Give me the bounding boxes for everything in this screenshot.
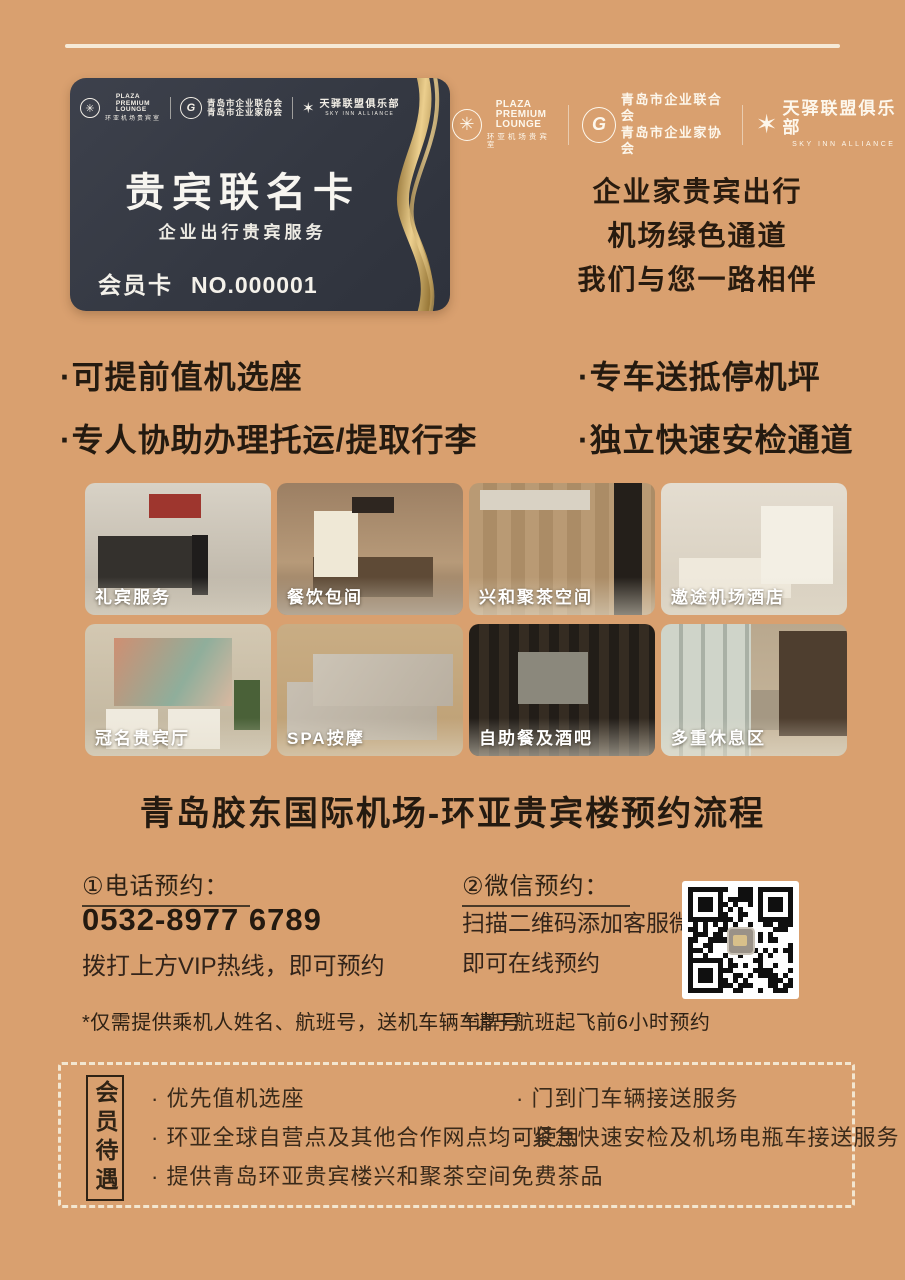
qr-center-logo-icon: [727, 927, 755, 955]
qingdao-line2: 青岛市企业家协会: [207, 108, 283, 117]
reservation-flow-title: 青岛胶东国际机场-环亚贵宾楼预约流程: [0, 786, 905, 835]
card-subtitle: 企业出行贵宾服务: [70, 218, 415, 243]
gallery-photo: 礼宾服务: [85, 483, 271, 615]
sky-inn-alliance-logo: ✶ 天驿联盟俱乐部 SKY INN ALLIANCE: [302, 99, 400, 118]
phone-booking-heading: ①电话预约：: [82, 866, 250, 907]
benefit-apron-car: ·专车送抵停机坪: [578, 352, 821, 398]
card-title: 贵宾联名卡: [70, 160, 415, 218]
flyer-page: ✳ PLAZA PREMIUM LOUNGE 环亚机场贵宾室 G 青岛市企业联合…: [0, 0, 905, 1280]
wechat-booking-line2: 即可在线预约: [462, 944, 600, 978]
gallery-photo: 兴和聚茶空间: [469, 483, 655, 615]
benefit-security: ·独立快速安检通道: [578, 415, 854, 461]
logo-divider: [292, 97, 293, 119]
gallery-photo: SPA按摩: [277, 624, 463, 756]
gallery-photo: 冠名贵宾厅: [85, 624, 271, 756]
gallery-photo: 餐饮包间: [277, 483, 463, 615]
plaza-premium-logo: ✳ PLAZA PREMIUM LOUNGE 环亚机场贵宾室: [452, 100, 555, 150]
slogan-line2: 机场绿色通道: [490, 214, 905, 258]
sky-inn-subtitle: SKY INN ALLIANCE: [325, 112, 394, 118]
phone-booking-note: 拨打上方VIP热线，即可预约: [82, 946, 385, 981]
plaza-word3: LOUNGE: [496, 120, 547, 130]
logo-divider: [742, 105, 743, 145]
qingdao-enterprise-logo: G 青岛市企业联合会 青岛市企业家协会: [582, 92, 729, 157]
photo-label: SPA按摩: [287, 724, 365, 749]
photo-label: 多重休息区: [671, 724, 766, 749]
vip-card: ✳ PLAZA PREMIUM LOUNGE 环亚机场贵宾室 G 青岛市企业联合…: [70, 78, 450, 311]
wechat-booking-line1: 扫描二维码添加客服微信: [462, 904, 715, 938]
qingdao-line1: 青岛市企业联合会: [621, 92, 729, 125]
plaza-flower-icon: ✳: [452, 109, 482, 141]
sky-inn-alliance-logo: ✶ 天驿联盟俱乐部 SKY INN ALLIANCE: [756, 100, 905, 148]
wechat-booking-heading: ②微信预约：: [462, 866, 630, 907]
membership-label: 会员待遇: [88, 1080, 122, 1196]
gallery-photo: 遨途机场酒店: [661, 483, 847, 615]
sky-inn-title: 天驿联盟俱乐部: [783, 100, 905, 137]
photo-label: 兴和聚茶空间: [479, 583, 593, 608]
gallery-photo: 自助餐及酒吧: [469, 624, 655, 756]
slogan-block: 企业家贵宾出行 机场绿色通道 我们与您一路相伴: [490, 170, 905, 302]
membership-item: · 门到门车辆接送服务: [516, 1079, 899, 1118]
gallery-photo: 多重休息区: [661, 624, 847, 756]
photo-label: 餐饮包间: [287, 583, 363, 608]
wechat-footnote: *请于航班起飞前6小时预约: [465, 1006, 710, 1035]
card-logo-row: ✳ PLAZA PREMIUM LOUNGE 环亚机场贵宾室 G 青岛市企业联合…: [70, 94, 410, 122]
qingdao-line2: 青岛市企业家协会: [621, 125, 729, 158]
benefit-checkin: ·可提前值机选座: [60, 352, 303, 398]
member-card-label: 会员卡: [98, 272, 173, 298]
vip-hotline-number: 0532-8977 6789: [82, 902, 322, 938]
member-card-no: NO.000001: [191, 272, 318, 298]
benefit-luggage: ·专人协助办理托运/提取行李: [60, 415, 478, 461]
qingdao-enterprise-logo: G 青岛市企业联合会 青岛市企业家协会: [180, 97, 283, 119]
logo-divider: [568, 105, 569, 145]
photo-label: 自助餐及酒吧: [479, 724, 593, 749]
phone-footnote: *仅需提供乘机人姓名、航班号，送机车辆车牌号: [82, 1006, 521, 1035]
slogan-line1: 企业家贵宾出行: [490, 170, 905, 214]
plaza-flower-icon: ✳: [80, 98, 100, 118]
membership-item: · 提供青岛环亚贵宾楼兴和聚茶空间免费茶品: [151, 1157, 603, 1196]
plaza-premium-logo: ✳ PLAZA PREMIUM LOUNGE 环亚机场贵宾室: [80, 94, 161, 122]
sky-inn-title: 天驿联盟俱乐部: [320, 99, 401, 110]
plaza-word3: LOUNGE: [116, 107, 150, 114]
membership-label-box: 会员待遇: [86, 1075, 124, 1201]
membership-list-right: · 门到门车辆接送服务 · 紧急快速安检及机场电瓶车接送服务: [516, 1079, 899, 1157]
header-logo-row: ✳ PLAZA PREMIUM LOUNGE 环亚机场贵宾室 G 青岛市企业联合…: [452, 92, 905, 157]
wechat-qr-code: [682, 881, 799, 999]
card-member-number: 会员卡NO.000001: [98, 266, 318, 300]
photo-gallery: 礼宾服务 餐饮包间 兴和聚茶空间 遨途机场酒店 冠名贵宾厅 SPA按摩 自助餐及…: [85, 483, 847, 756]
photo-label: 冠名贵宾厅: [95, 724, 190, 749]
photo-label: 礼宾服务: [95, 583, 171, 608]
logo-divider: [170, 97, 171, 119]
sky-inn-star-icon: ✶: [756, 109, 778, 140]
plaza-subtitle: 环亚机场贵宾室: [105, 116, 161, 123]
sky-inn-star-icon: ✶: [302, 99, 315, 117]
plaza-subtitle: 环亚机场贵宾室: [487, 133, 555, 150]
qingdao-g-icon: G: [582, 107, 616, 143]
sky-inn-subtitle: SKY INN ALLIANCE: [792, 141, 895, 149]
membership-benefits-box: 会员待遇 · 优先值机选座 · 环亚全球自营点及其他合作网点均可使用 · 提供青…: [58, 1062, 855, 1208]
slogan-line3: 我们与您一路相伴: [490, 258, 905, 302]
membership-item: · 紧急快速安检及机场电瓶车接送服务: [516, 1118, 899, 1157]
top-divider-line: [65, 44, 840, 48]
qingdao-g-icon: G: [180, 97, 202, 119]
photo-label: 遨途机场酒店: [671, 583, 785, 608]
